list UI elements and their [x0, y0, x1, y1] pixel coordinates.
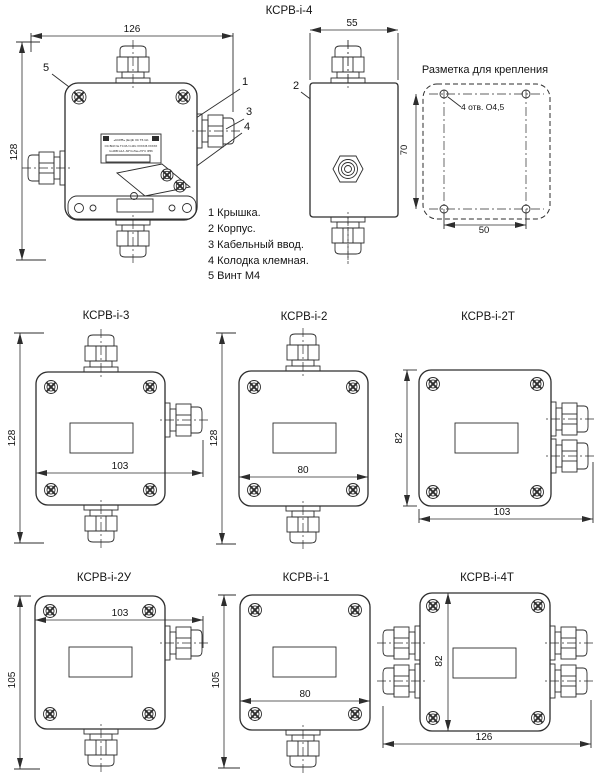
screw-icon [347, 381, 360, 394]
cable-gland [84, 499, 118, 548]
cable-gland [377, 626, 426, 660]
screw-icon [176, 90, 190, 104]
cable-gland [84, 329, 118, 378]
cable-gland [544, 664, 593, 698]
drawing-rect [152, 136, 159, 141]
screw-icon [427, 486, 440, 499]
ksrv-i-4-front-view: КСРВ-i-41261285134«КСРВ» (Ex)ib IIC T6 G… [9, 5, 313, 263]
legend-item-4: 4 Колодка клемная. [208, 255, 309, 267]
drawing-rect [103, 136, 109, 141]
cable-gland [286, 328, 320, 377]
screw-icon [144, 484, 157, 497]
drawing-rect [419, 370, 551, 506]
technical-drawing-canvas: КСРВ-i-41261285134«КСРВ» (Ex)ib IIC T6 G… [0, 0, 600, 782]
callout-5: 5 [43, 62, 49, 74]
screw-icon [143, 605, 156, 618]
holes-note: 4 отв. O4,5 [461, 102, 504, 112]
screw-icon [532, 712, 545, 725]
cable-gland [331, 211, 365, 260]
dim-label-height: 128 [9, 143, 20, 160]
callout-1: 1 [242, 76, 248, 88]
screw-icon [249, 708, 262, 721]
legend-item-5: 5 Винт М4 [208, 270, 260, 282]
mounting-layout: Разметка для крепления4 отв. O4,57050 [399, 64, 550, 236]
dim-label: 103 [494, 507, 511, 518]
screw-icon [532, 600, 545, 613]
dim-label: 128 [7, 429, 18, 446]
screw-icon [174, 180, 186, 192]
screw-icon [45, 381, 58, 394]
cable-gland [84, 723, 118, 772]
cable-gland [377, 664, 426, 698]
ksrv-i-2t-view: КСРВ-i-2Т82103 [394, 311, 594, 523]
model-title: КСРВ-i-2Т [461, 311, 515, 323]
screw-icon [349, 604, 362, 617]
model-title: КСРВ-i-2У [77, 572, 132, 584]
legend-item-3: 3 Кабельный ввод. [208, 239, 304, 251]
model-title: КСРВ-i-3 [83, 310, 130, 322]
callout-2: 2 [293, 80, 299, 92]
screw-icon [143, 708, 156, 721]
legend-item-2: 2 Корпус. [208, 223, 256, 235]
cable-gland [159, 626, 208, 660]
main-title: КСРВ-i-4 [266, 5, 313, 17]
dim-label-width: 126 [124, 24, 141, 35]
dim-label: 70 [399, 145, 410, 156]
cable-gland [331, 40, 365, 89]
screw-icon [349, 708, 362, 721]
screw-icon [531, 486, 544, 499]
screw-icon [144, 381, 157, 394]
dim-label: 80 [297, 465, 309, 476]
cable-gland [286, 500, 320, 549]
screw-icon [44, 708, 57, 721]
model-title: КСРВ-i-2 [281, 311, 328, 323]
ksrv-i-3-view: КСРВ-i-3128103 [7, 310, 208, 548]
screw-icon [249, 604, 262, 617]
nameplate-line-2: ОС ВСИ № ТС RU C-RU.ХХХХ.В.ХХХХХ [105, 144, 158, 148]
cable-gland [545, 402, 594, 436]
cable-gland [159, 403, 208, 437]
nameplate-line-1: «КСРВ» (Ex)ib IIC T6 Gb [114, 138, 149, 142]
dim-label: 103 [112, 608, 129, 619]
dim-label: 80 [299, 689, 311, 700]
ksrv-i-1-view: КСРВ-i-110580 [211, 572, 370, 773]
drawing-line [226, 119, 244, 129]
cable-gland [22, 151, 71, 185]
cable-gland [191, 114, 240, 148]
cable-gland [116, 40, 150, 89]
dim-label: 103 [112, 461, 129, 472]
legend-item-1: 1 Крышка. [208, 207, 261, 219]
screw-icon [72, 90, 86, 104]
ksrv-i-4-side-view: 552 [293, 18, 398, 264]
model-title: КСРВ-i-4Т [460, 572, 514, 584]
screw-icon [44, 605, 57, 618]
cable-gland [545, 439, 594, 473]
screw-icon [427, 712, 440, 725]
screw-icon [161, 169, 173, 181]
screw-icon [427, 378, 440, 391]
drawing-rect [310, 83, 398, 217]
nameplate-line-3: U≤30В I≤1А -60°C≤Ta≤+70°C IP66 [109, 149, 153, 153]
callout-3: 3 [246, 106, 252, 118]
screw-icon [248, 484, 261, 497]
dim-label: 126 [476, 732, 493, 743]
drawing-sheet: КСРВ-i-41261285134«КСРВ» (Ex)ib IIC T6 G… [0, 0, 600, 782]
screw-icon [347, 484, 360, 497]
ksrv-i-2u-view: КСРВ-i-2У105103 [7, 572, 208, 772]
dim-label: 82 [434, 655, 445, 667]
dim-label: 50 [479, 225, 490, 236]
dim-label: 105 [211, 671, 222, 688]
cable-gland [116, 214, 150, 263]
ksrv-i-4t-view: КСРВ-i-4Т82126 [377, 572, 593, 748]
screw-icon [45, 484, 58, 497]
dim-label: 128 [209, 429, 220, 446]
cable-gland [544, 626, 593, 660]
dim-label: 82 [394, 432, 405, 444]
screw-icon [248, 381, 261, 394]
ksrv-i-2-view: КСРВ-i-212880 [209, 311, 368, 549]
legend: 1 Крышка.2 Корпус.3 Кабельный ввод.4 Кол… [208, 207, 309, 282]
screw-icon [427, 600, 440, 613]
drawing-line [448, 97, 461, 107]
cable-gland [286, 724, 320, 773]
dim-label-side: 55 [346, 18, 358, 29]
dim-label: 105 [7, 671, 18, 688]
mounting-title: Разметка для крепления [422, 64, 548, 76]
callout-4: 4 [244, 121, 250, 133]
screw-icon [531, 378, 544, 391]
model-title: КСРВ-i-1 [283, 572, 330, 584]
